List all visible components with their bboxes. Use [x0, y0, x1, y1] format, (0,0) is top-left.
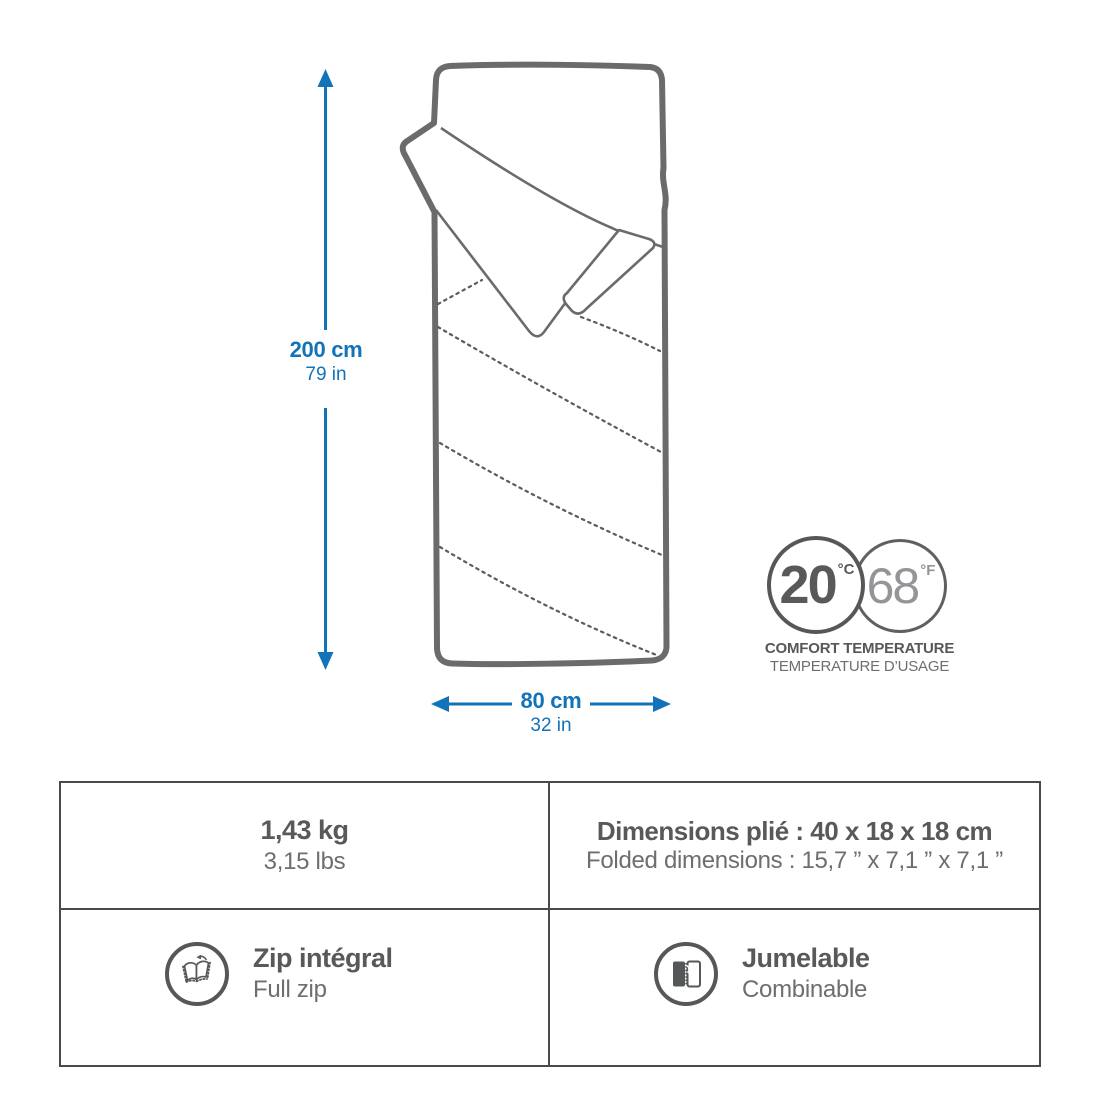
height-label-metric: 200 cm — [246, 338, 406, 362]
folded-dimensions-cell: Dimensions plié : 40 x 18 x 18 cm Folded… — [550, 783, 1039, 910]
folded-dimensions-fr: Dimensions plié : 40 x 18 x 18 cm — [597, 817, 992, 846]
comfort-temp-caption-fr: TEMPERATURE D’USAGE — [752, 658, 967, 676]
celsius-value: 20 — [780, 558, 836, 612]
zip-label-en: Full zip — [253, 977, 393, 1003]
pairable-cell: Jumelable Combinable — [550, 910, 1039, 1065]
width-label-metric: 80 cm — [471, 689, 631, 713]
width-label-imperial: 32 in — [471, 716, 631, 737]
fahrenheit-value: 68 — [867, 561, 919, 611]
celsius-unit: °C — [838, 562, 855, 577]
comfort-temp-caption-en: COMFORT TEMPERATURE — [752, 640, 967, 658]
celsius-circle: 20 °C — [767, 536, 865, 634]
fahrenheit-circle: 68 °F — [853, 539, 947, 633]
height-label-imperial: 79 in — [246, 365, 406, 386]
weight-imperial: 3,15 lbs — [264, 849, 346, 875]
width-label: 80 cm 32 in — [471, 689, 631, 736]
zip-together-icon — [654, 942, 718, 1006]
full-zip-icon — [165, 942, 229, 1006]
fahrenheit-unit: °F — [920, 563, 935, 578]
product-spec-sheet: 200 cm 79 in 80 cm 32 in 68 °F 20 °C COM… — [0, 0, 1100, 1100]
pairing-label-fr: Jumelable — [742, 944, 870, 974]
paired-bags-glyph — [664, 952, 708, 996]
height-label: 200 cm 79 in — [246, 338, 406, 385]
folded-dimensions-en: Folded dimensions : 15,7 ” x 7,1 ” x 7,1… — [586, 848, 1003, 874]
weight-cell: 1,43 kg 3,15 lbs — [61, 783, 550, 910]
open-sleeping-bag-glyph — [175, 952, 219, 996]
full-zip-cell: Zip intégral Full zip — [61, 910, 550, 1065]
comfort-temp-caption: COMFORT TEMPERATURE TEMPERATURE D’USAGE — [752, 640, 967, 675]
zip-label-fr: Zip intégral — [253, 944, 393, 974]
bag-outline — [403, 65, 667, 664]
pairing-label-en: Combinable — [742, 977, 870, 1003]
spec-table: 1,43 kg 3,15 lbs Dimensions plié : 40 x … — [59, 781, 1041, 1067]
weight-metric: 1,43 kg — [260, 816, 348, 846]
